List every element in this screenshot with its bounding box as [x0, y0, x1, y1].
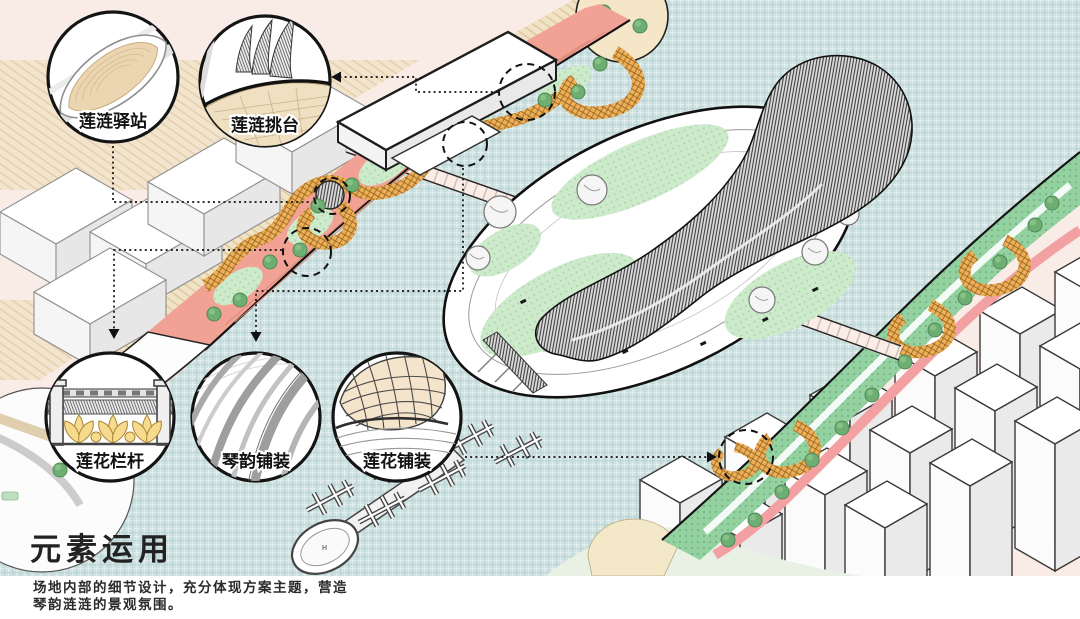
callout-qin-paving-label: 琴韵铺装: [222, 451, 290, 471]
callout-platform-label: 莲涟挑台: [231, 115, 299, 135]
callout-lotus-paving: 莲花铺装: [330, 353, 461, 481]
callout-station-label: 莲涟驿站: [79, 111, 147, 131]
page-subtitle-line1: 场地内部的细节设计，充分体现方案主题，营造: [33, 579, 348, 595]
page-title: 元素运用: [30, 532, 174, 567]
callout-lotus-paving-label: 莲花铺装: [363, 451, 431, 471]
site-plan-illustration: H: [0, 0, 1080, 619]
page-subtitle-line2: 琴韵涟涟的景观氛围。: [33, 596, 183, 612]
helipad-mark: H: [322, 545, 327, 552]
callout-railing-label: 莲花栏杆: [76, 451, 144, 471]
design-board: H: [0, 0, 1080, 619]
callout-railing: 莲花栏杆: [46, 353, 174, 481]
